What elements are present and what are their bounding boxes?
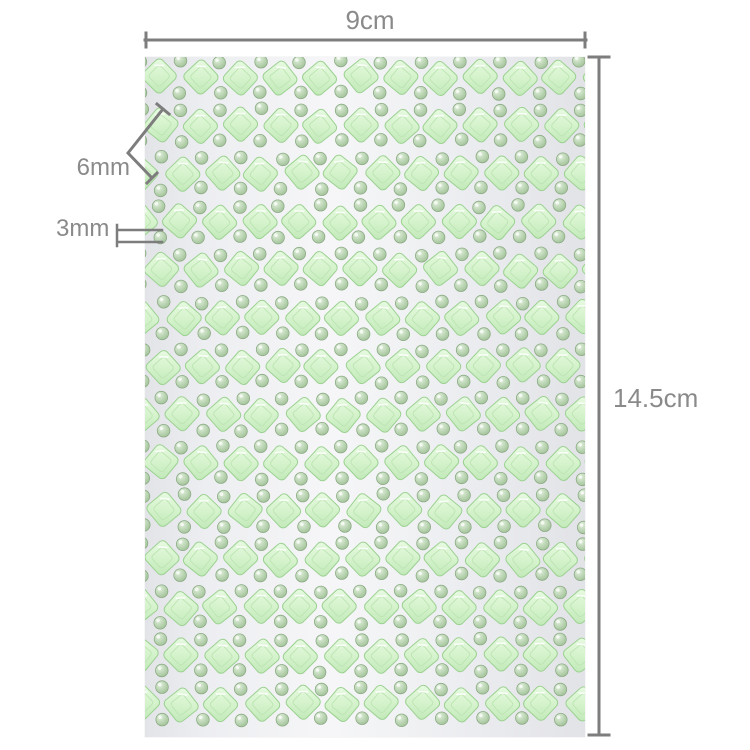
- height-label: 14.5cm: [613, 384, 698, 413]
- sticker-sheet: [145, 57, 585, 737]
- diamond-size-label: 6mm: [52, 155, 130, 181]
- gem-pattern: [145, 57, 585, 737]
- width-dimension-line: [145, 33, 586, 47]
- width-label: 9cm: [300, 6, 440, 35]
- round-size-label: 3mm: [56, 216, 109, 242]
- height-dimension-line: [589, 57, 609, 735]
- product-dimension-diagram: 9cm 14.5cm 6mm 3mm: [0, 0, 750, 750]
